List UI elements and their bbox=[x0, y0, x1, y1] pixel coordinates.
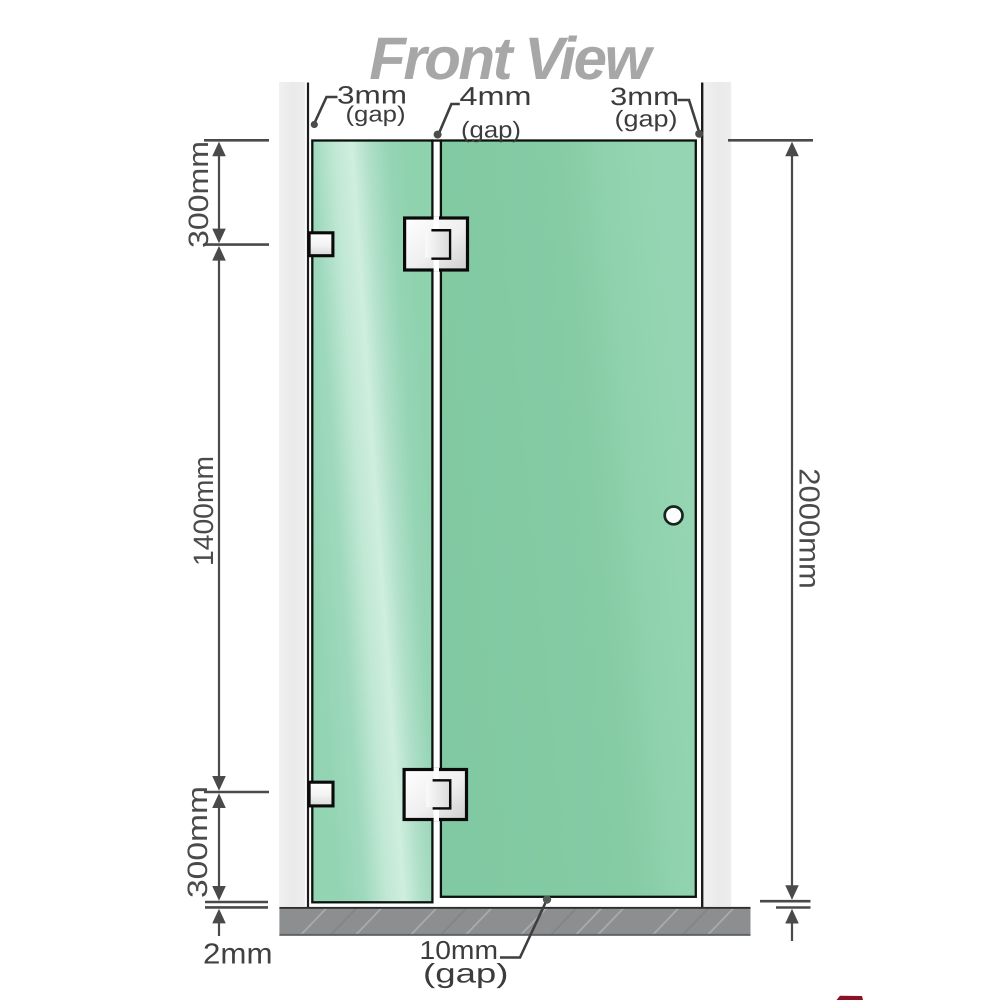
svg-text:(gap): (gap) bbox=[615, 106, 678, 132]
svg-text:2000mm: 2000mm bbox=[793, 468, 825, 589]
svg-text:300mm: 300mm bbox=[182, 786, 213, 898]
svg-text:1400mm: 1400mm bbox=[188, 456, 219, 566]
svg-text:(gap): (gap) bbox=[346, 102, 406, 127]
svg-text:4mm: 4mm bbox=[460, 81, 532, 111]
svg-text:(gap): (gap) bbox=[461, 117, 521, 143]
svg-text:(gap): (gap) bbox=[423, 959, 509, 989]
svg-text:300mm: 300mm bbox=[183, 141, 214, 248]
svg-text:2mm: 2mm bbox=[203, 939, 273, 971]
